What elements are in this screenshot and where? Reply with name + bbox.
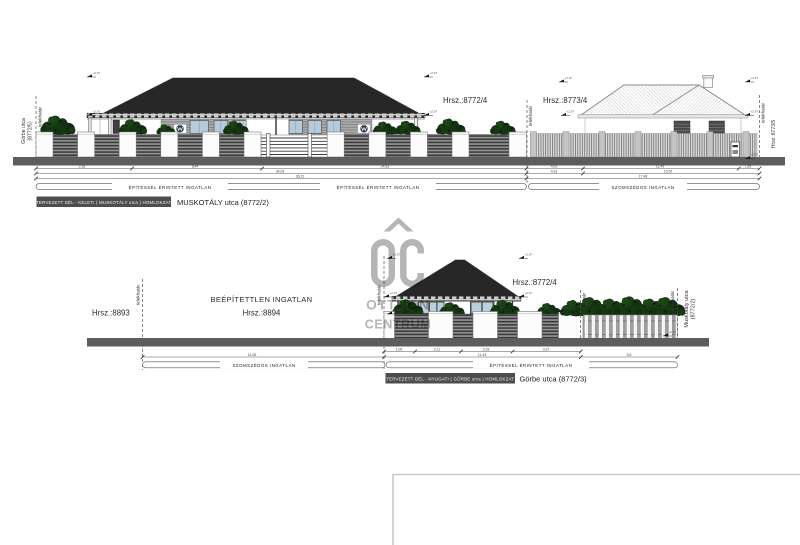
svg-text:4,03: 4,03	[551, 164, 558, 168]
svg-text:1,55: 1,55	[745, 164, 752, 168]
svg-text:8,44: 8,44	[192, 164, 199, 168]
svg-text:ÉPÍTÉSSEL ÉRINTETT INGATLAN: ÉPÍTÉSSEL ÉRINTETT INGATLAN	[490, 363, 573, 368]
svg-text:4,03: 4,03	[551, 169, 558, 173]
svg-text:BEÉPÍTETTLEN INGATLAN: BEÉPÍTETTLEN INGATLAN	[211, 295, 313, 304]
svg-text:telekhatár: telekhatár	[528, 105, 533, 126]
svg-text:3,18: 3,18	[483, 347, 490, 351]
svg-text:telekhatár: telekhatár	[135, 284, 140, 305]
svg-text:11,43: 11,43	[478, 353, 486, 357]
svg-text:2,18: 2,18	[79, 164, 86, 168]
svg-text:2,11: 2,11	[434, 347, 440, 351]
svg-text:13,00: 13,00	[664, 169, 673, 173]
svg-text:Görbe utca: Görbe utca	[21, 118, 27, 144]
svg-text:SZOMSZÉDOS INGATLAN: SZOMSZÉDOS INGATLAN	[232, 363, 295, 368]
svg-text:Muskotály utca: Muskotály utca	[684, 289, 690, 327]
svg-text:14,05: 14,05	[248, 353, 257, 357]
svg-text:ÉPÍTÉSSEL ÉRINTETT INGATLAN: ÉPÍTÉSSEL ÉRINTETT INGATLAN	[129, 185, 212, 190]
svg-text:Görbe utca (8772/3): Görbe utca (8772/3)	[520, 375, 588, 384]
svg-text:CENTRUM: CENTRUM	[365, 318, 431, 332]
svg-text:1,05: 1,05	[396, 347, 403, 351]
svg-text:3,37: 3,37	[543, 347, 550, 351]
svg-text:24,63: 24,63	[381, 164, 390, 168]
svg-text:5,6: 5,6	[627, 353, 632, 357]
svg-text:11,45: 11,45	[656, 164, 664, 168]
svg-text:OTTHON: OTTHON	[366, 298, 430, 313]
svg-text:telekhatár: telekhatár	[38, 106, 43, 127]
svg-text:TERVEZETT DÉL - NYUGATI ( GÖ: TERVEZETT DÉL - NYUGATI ( GÖRBE utca ) H…	[386, 376, 514, 381]
svg-text:TERVEZETT DÉL - KELETI ( MUS: TERVEZETT DÉL - KELETI ( MUSKOTÁLY utca …	[36, 200, 171, 205]
svg-text:Hrsz.:8772/4: Hrsz.:8772/4	[443, 96, 488, 105]
svg-text:36,21: 36,21	[296, 174, 305, 178]
svg-text:17,48: 17,48	[639, 174, 648, 178]
svg-text:Hrsz.:8773/4: Hrsz.:8773/4	[543, 96, 588, 105]
svg-text:telekhatár: telekhatár	[761, 102, 766, 123]
svg-text:(8772/2): (8772/2)	[691, 298, 697, 319]
svg-text:MUSKOTÁLY utca (8772/2): MUSKOTÁLY utca (8772/2)	[177, 198, 269, 207]
svg-text:34,03: 34,03	[276, 169, 285, 173]
svg-text:Hrsz.:8894: Hrsz.:8894	[243, 309, 281, 318]
svg-text:telekhatár: telekhatár	[670, 290, 675, 311]
svg-text:Hrsz.:8772/4: Hrsz.:8772/4	[513, 278, 558, 287]
svg-text:Hrsz.:8773/5: Hrsz.:8773/5	[771, 120, 777, 149]
svg-text:telekhatár: telekhatár	[581, 292, 586, 313]
svg-text:Hrsz.:8893: Hrsz.:8893	[92, 309, 130, 318]
svg-text:(8772/5): (8772/5)	[28, 121, 34, 141]
svg-text:SZOMSZÉDOS INGATLAN: SZOMSZÉDOS INGATLAN	[611, 185, 674, 190]
svg-text:ÉPÍTÉSSEL ÉRINTETT INGATLAN: ÉPÍTÉSSEL ÉRINTETT INGATLAN	[337, 185, 420, 190]
